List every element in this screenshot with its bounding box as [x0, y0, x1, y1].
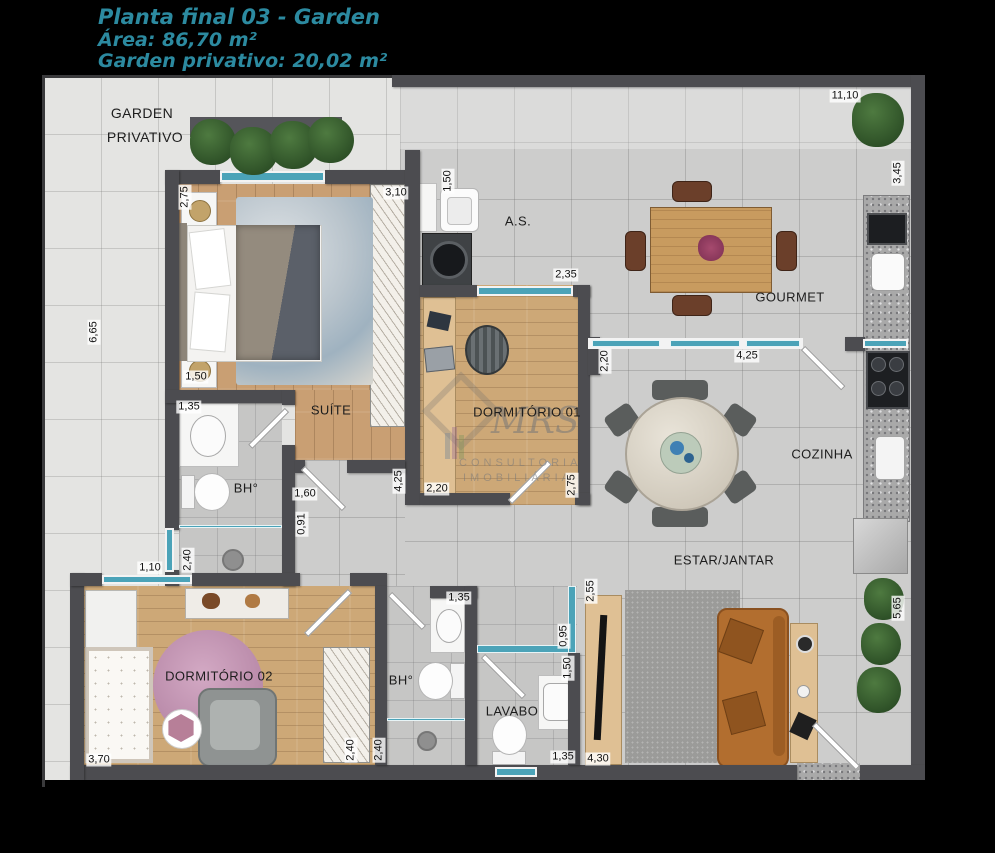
wall-right [911, 75, 925, 780]
dorm2-window [102, 575, 192, 584]
wall-dorm2-left [70, 573, 84, 780]
washing-machine-door [430, 241, 468, 279]
room-label-suite: SUÍTE [311, 403, 351, 418]
dorm2-dresser [185, 588, 289, 619]
suite-blanket [236, 225, 320, 360]
kitchen-sink [871, 253, 905, 291]
side-table-dish [797, 685, 810, 698]
bathroom2-sink [436, 609, 462, 643]
room-label-bathroom2: BH° [389, 673, 413, 688]
dimension-label: 1,50 [562, 655, 575, 680]
dimension-label: 2,35 [553, 269, 578, 282]
wall-bathroom1-corner [282, 390, 295, 405]
dorm1-window [477, 286, 573, 296]
lavabo-toilet [492, 715, 527, 755]
watermark-line2: IMOBILIÁRIA [463, 472, 573, 484]
centerpiece-bowl-2 [684, 453, 694, 463]
garden-fence-left [42, 75, 45, 787]
dimension-label: 5,65 [892, 595, 905, 620]
dimension-label: 1,50 [183, 371, 208, 384]
dimension-label: 2,20 [424, 483, 449, 496]
kitchen-window [863, 339, 908, 348]
room-label-lavabo: LAVABO [486, 704, 539, 719]
crib [85, 647, 153, 763]
kitchen-dishwasher [875, 436, 905, 480]
cooktop-burner-4 [889, 381, 904, 396]
wall-bottom-left [70, 765, 797, 780]
coffee-cup [796, 635, 814, 653]
wall-dorm2-top-b [192, 573, 300, 586]
lavabo-window [495, 767, 537, 777]
dimension-label: 1,60 [292, 488, 317, 501]
floor-plan-image: Planta final 03 - Garden Área: 86,70 m² … [0, 0, 995, 853]
living-plant-2 [861, 623, 901, 665]
wall-top [392, 75, 925, 87]
sofa-backrest [773, 616, 785, 756]
dimension-label: 1,10 [137, 562, 162, 575]
wall-bottom-right [860, 765, 925, 780]
dresser-decor-2 [245, 594, 260, 608]
dorm1-laptop [424, 346, 455, 373]
bathroom2-shower-drain [417, 731, 437, 751]
dimension-label: 0,95 [558, 623, 571, 648]
plan-title: Planta final 03 - Garden Área: 86,70 m² … [98, 6, 387, 72]
dimension-label: 3,10 [383, 187, 408, 200]
dimension-label: 3,45 [892, 160, 905, 185]
room-label-gourmet: GOURMET [755, 290, 824, 305]
living-window-pane2 [670, 340, 740, 347]
wall-dorm2-top-a [70, 573, 102, 586]
suite-lamp-top [189, 200, 211, 222]
dimension-label: 2,75 [179, 184, 192, 209]
dimension-label: 1,35 [176, 401, 201, 414]
bathroom1-shower-drain [222, 549, 244, 571]
dimension-label: 2,20 [599, 348, 612, 373]
dorm1-chair [465, 325, 509, 375]
wall-dorm1-right [578, 285, 590, 505]
centerpiece-bowl-1 [670, 441, 684, 455]
plan-garden-line: Garden privativo: 20,02 m² [98, 51, 387, 72]
dimension-label: 4,25 [734, 350, 759, 363]
bathroom1-shower-glass [179, 525, 282, 528]
room-label-dorm2: DORMITÓRIO 02 [165, 669, 273, 684]
dimension-label: 6,65 [88, 319, 101, 344]
dimension-label: 2,40 [345, 737, 358, 762]
planter-plant-1 [190, 119, 236, 165]
living-plant-3 [857, 667, 901, 713]
suite-pillow-2 [190, 292, 231, 353]
laundry-tank-basin [447, 197, 472, 225]
gourmet-centerpiece [698, 235, 724, 261]
room-label-service: A.S. [505, 214, 531, 229]
gourmet-chair-left [625, 231, 646, 271]
wall-dorm1-top-a [420, 285, 477, 297]
dimension-label: 2,40 [373, 737, 386, 762]
living-window-pane3 [746, 340, 800, 347]
suite-window [220, 171, 325, 182]
cooktop-burner-3 [871, 381, 886, 396]
room-label-bathroom1: BH° [234, 481, 258, 496]
cooktop-burner-1 [871, 357, 886, 372]
wall-kitchen-stub [845, 337, 865, 351]
gourmet-chair-top [672, 181, 712, 202]
dimension-label: 2,75 [566, 472, 579, 497]
watermark-logo-bar-1 [445, 433, 450, 459]
planter-plant-4 [308, 117, 354, 163]
service-shelf [418, 183, 437, 232]
dimension-label: 11,10 [830, 90, 861, 103]
refrigerator [853, 518, 908, 574]
watermark-logo-bar-3 [459, 435, 464, 459]
dorm2-armchair-seat [210, 700, 260, 750]
wall-suite-service-divider [405, 150, 420, 505]
room-label-living: ESTAR/JANTAR [674, 553, 774, 568]
wall-bathroom2-right [465, 586, 477, 765]
dorm2-cabinet [85, 590, 137, 649]
gourmet-chair-right [776, 231, 797, 271]
living-window-pane1 [592, 340, 660, 347]
dimension-label: 3,70 [86, 754, 111, 767]
wall-suite-left [165, 170, 179, 530]
bathroom1-window [165, 528, 174, 572]
bathroom1-sink [190, 415, 226, 457]
room-label-garden-1: GARDEN [111, 105, 173, 121]
suite-bed-headboard [179, 223, 187, 361]
dimension-label: 1,35 [446, 592, 471, 605]
suite-pillow-1 [189, 228, 232, 290]
bathroom1-toilet-tank [181, 475, 195, 509]
kitchen-microwave [867, 213, 907, 245]
wall-dorm2-top-c [350, 573, 387, 586]
dimension-label: 1,35 [550, 751, 575, 764]
plan-area-line: Área: 86,70 m² [98, 30, 387, 51]
bathroom2-shower-glass [387, 718, 465, 721]
bathroom1-toilet [194, 473, 230, 511]
bathroom2-toilet [418, 662, 453, 700]
cooktop-burner-2 [889, 357, 904, 372]
room-label-dorm1: DORMITÓRIO 01 [473, 405, 581, 420]
suite-closet [370, 184, 405, 427]
wall-suite-top-b [325, 170, 415, 184]
dimension-label: 4,25 [393, 468, 406, 493]
dimension-label: 2,55 [585, 578, 598, 603]
dimension-label: 4,30 [585, 753, 610, 766]
wall-bathroom1-right [282, 445, 295, 586]
dimension-label: 1,50 [442, 168, 455, 193]
floor-plan: GARDEN PRIVATIVO SUÍTE BH° DORMITÓRIO 01… [40, 75, 930, 790]
dimension-label: 0,91 [296, 511, 309, 536]
watermark-logo-bar-2 [452, 427, 457, 459]
room-label-kitchen: COZINHA [791, 447, 852, 462]
gourmet-chair-bottom [672, 295, 712, 316]
dresser-decor-1 [202, 593, 220, 609]
watermark-line1: CONSULTORIA [459, 457, 581, 469]
plan-title-line1: Planta final 03 - Garden [98, 6, 387, 30]
room-label-garden-2: PRIVATIVO [107, 129, 183, 145]
dimension-label: 2,40 [182, 547, 195, 572]
